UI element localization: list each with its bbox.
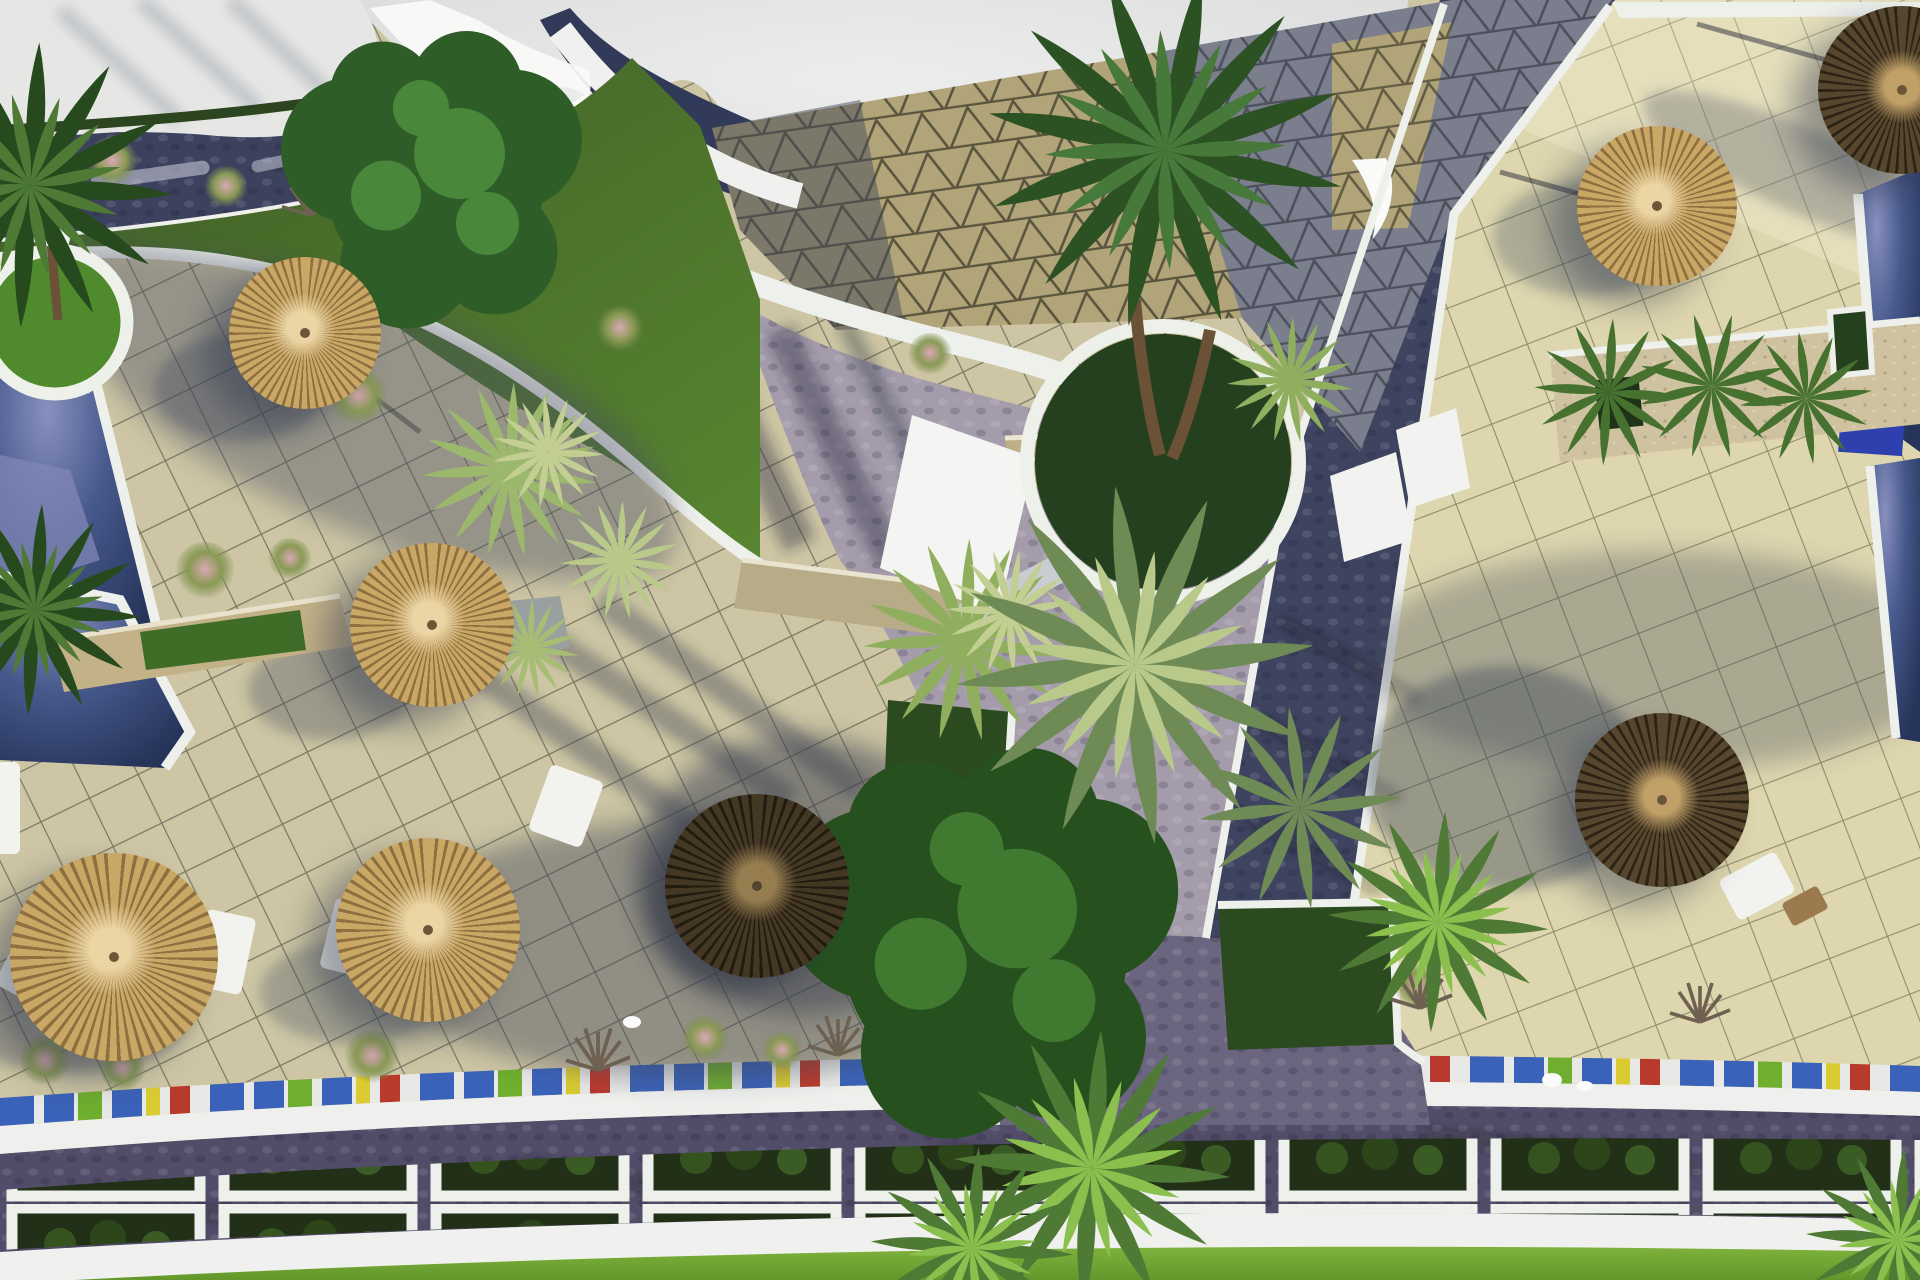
parasol-bottom-left-large <box>10 853 218 1061</box>
parasol-bottom-center <box>336 838 520 1022</box>
aerial-resort-render: Aerial 3D architectural rendering of a r… <box>0 0 1920 1280</box>
circular-planter-center <box>1035 334 1291 590</box>
parasol-upper-left <box>229 257 381 409</box>
parasol-shaded-center <box>665 794 849 978</box>
parasol-right-bottom <box>1575 713 1749 887</box>
parasol-mid-left <box>350 543 514 707</box>
parasol-right-top <box>1577 126 1737 286</box>
